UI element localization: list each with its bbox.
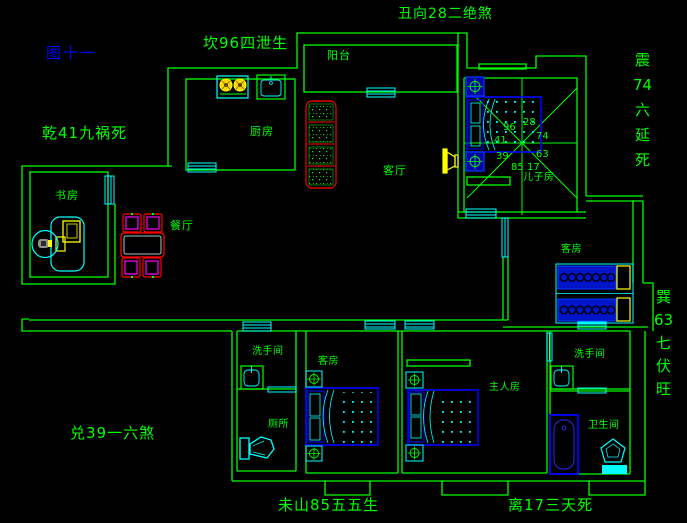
room-label-study: 书房 bbox=[55, 190, 79, 201]
compass-number-se: 63 bbox=[536, 150, 549, 160]
room-label-guest-mid: 客房 bbox=[561, 245, 582, 255]
washroom2-door bbox=[547, 333, 552, 361]
bathroom-toilet bbox=[601, 439, 627, 474]
kitchen-walls bbox=[186, 79, 295, 170]
tv-icon bbox=[443, 149, 458, 173]
compass-number-s-left: 85 bbox=[511, 163, 524, 173]
annotation-weishan: 未山85五五生 bbox=[278, 498, 379, 513]
floorplan-drawing bbox=[0, 0, 687, 523]
annotation-zhen: 震 74 六 延 死 bbox=[633, 53, 652, 168]
master-wardrobe bbox=[407, 360, 470, 366]
study-desk bbox=[51, 217, 84, 271]
room-label-living: 客厅 bbox=[383, 165, 407, 176]
son-room-shelf bbox=[467, 177, 510, 185]
room-label-toilet: 厕所 bbox=[268, 420, 289, 430]
twin-beds bbox=[556, 264, 633, 323]
room-label-son-room: 儿子房 bbox=[523, 173, 555, 183]
master-nightstand-bottom bbox=[406, 445, 423, 461]
headboard bbox=[617, 266, 630, 289]
compass-number-e: 74 bbox=[536, 132, 549, 142]
room-label-master: 主人房 bbox=[489, 383, 521, 393]
annotation-qian: 乾41九祸死 bbox=[42, 126, 127, 141]
toilet-fixture bbox=[240, 437, 274, 459]
washroom1-window bbox=[243, 322, 271, 331]
room-label-washroom2: 洗手间 bbox=[574, 350, 606, 360]
washroom2-sink bbox=[551, 366, 573, 389]
son-room-window bbox=[466, 209, 496, 218]
compass-number-sw: 39 bbox=[496, 152, 509, 162]
compass-number-ne: 28 bbox=[523, 118, 536, 128]
headboard bbox=[617, 298, 630, 321]
guestmid-door bbox=[502, 218, 508, 257]
cad-floorplan-canvas[interactable]: 图十一 坎96四泄生 丑向28二绝煞 乾41九祸死 兑39一六煞 未山85五五生… bbox=[0, 0, 687, 523]
figure-label: 图十一 bbox=[46, 46, 97, 61]
annotation-chou: 丑向28二绝煞 bbox=[398, 7, 493, 21]
master-bed bbox=[408, 390, 478, 445]
master-nightstand-top bbox=[406, 372, 423, 388]
dining-set bbox=[121, 213, 164, 278]
annotation-kan: 坎96四泄生 bbox=[203, 36, 288, 51]
room-label-bathroom: 卫生间 bbox=[588, 421, 620, 431]
compass-number-nw: 96 bbox=[503, 123, 516, 133]
annotation-dui: 兑39一六煞 bbox=[70, 426, 155, 441]
guestroom-bottom-window bbox=[365, 321, 395, 329]
sofa bbox=[306, 101, 336, 188]
annotation-xun: 巽 63 七 伏 旺 bbox=[654, 290, 673, 397]
room-label-guest-bottom: 客房 bbox=[318, 357, 339, 367]
master-window bbox=[405, 321, 434, 329]
study-room-walls bbox=[30, 172, 108, 277]
room-label-washroom1: 洗手间 bbox=[252, 347, 284, 357]
compass-number-s-right: 17 bbox=[527, 163, 540, 173]
compass-number-w: 41 bbox=[494, 136, 507, 146]
washroom1-sink bbox=[241, 366, 263, 389]
son-nightstand-bottom bbox=[466, 152, 484, 171]
son-nightstand-top bbox=[466, 77, 484, 96]
guest-nightstand-bottom bbox=[306, 446, 322, 461]
annotation-li: 离17三天死 bbox=[508, 498, 593, 513]
room-label-balcony: 阳台 bbox=[327, 50, 351, 61]
room-label-kitchen: 厨房 bbox=[250, 126, 274, 137]
guest-nightstand-top bbox=[306, 371, 322, 387]
room-label-dining: 餐厅 bbox=[170, 220, 194, 231]
guest-bed bbox=[306, 388, 378, 445]
study-door bbox=[105, 176, 114, 204]
bathtub bbox=[550, 415, 578, 474]
study-chair bbox=[32, 231, 58, 258]
